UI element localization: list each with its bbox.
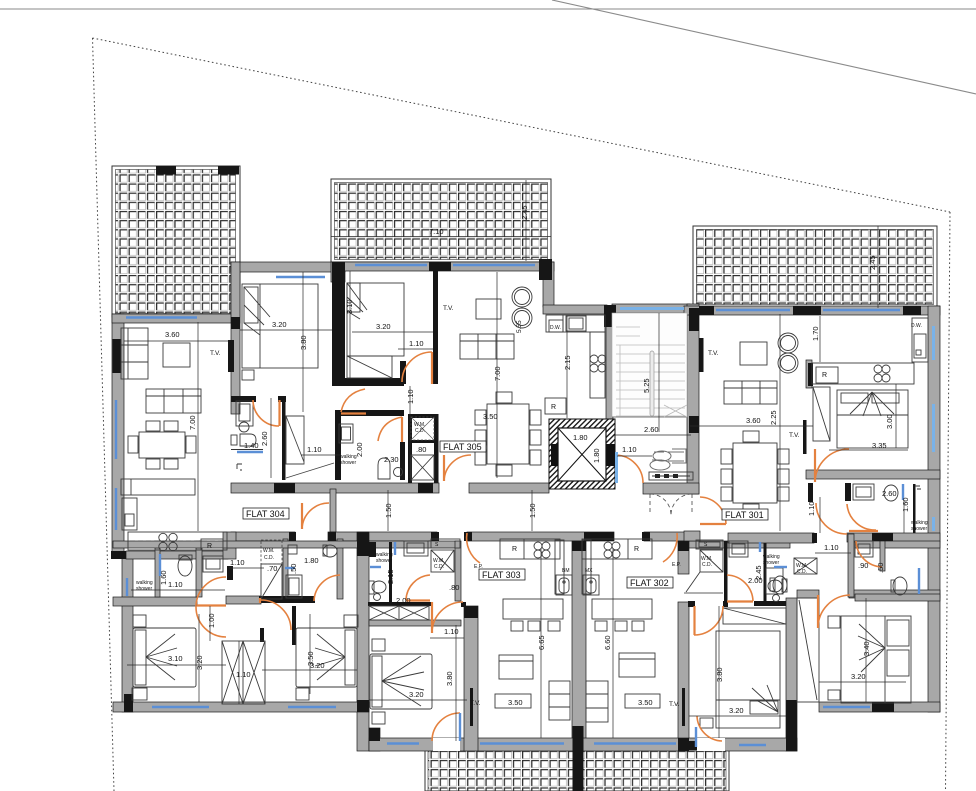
svg-text:3.10: 3.10 (345, 299, 354, 314)
svg-text:7.00: 7.00 (188, 415, 197, 430)
svg-text:C.D.: C.D. (797, 569, 807, 575)
svg-text:3.10: 3.10 (168, 654, 183, 663)
svg-text:T.V.: T.V. (708, 350, 719, 357)
svg-text:3.50: 3.50 (638, 698, 653, 707)
svg-text:3.60: 3.60 (165, 330, 180, 339)
svg-text:1.10: 1.10 (444, 627, 459, 636)
svg-text:3.20: 3.20 (851, 672, 866, 681)
svg-text:1.40: 1.40 (244, 441, 259, 450)
svg-text:1.10: 1.10 (307, 445, 322, 454)
svg-text:.50: .50 (289, 564, 298, 574)
svg-text:T.V.: T.V. (669, 701, 680, 708)
svg-text:T.V.: T.V. (443, 305, 454, 312)
svg-text:1.00: 1.00 (207, 613, 216, 628)
svg-text:3.40: 3.40 (862, 641, 871, 656)
svg-text:3.20: 3.20 (272, 320, 287, 329)
svg-text:2.60: 2.60 (882, 489, 897, 498)
svg-text:.80: .80 (449, 583, 459, 592)
svg-text:C.D.: C.D. (434, 564, 444, 570)
svg-text:C.D.: C.D. (415, 428, 425, 434)
svg-text:D.W.: D.W. (911, 323, 922, 329)
svg-text:2.60: 2.60 (260, 431, 269, 446)
svg-text:shower: shower (376, 558, 392, 564)
svg-text:1.60: 1.60 (159, 570, 168, 585)
svg-text:3.50: 3.50 (306, 651, 315, 666)
svg-text:1.80: 1.80 (573, 433, 588, 442)
svg-text:2.00: 2.00 (396, 596, 411, 605)
svg-text:3.80: 3.80 (715, 667, 724, 682)
svg-text:1.70: 1.70 (811, 326, 820, 341)
svg-text:.90: .90 (858, 561, 868, 570)
svg-text:C.D.: C.D. (702, 562, 712, 568)
svg-text:1.80: 1.80 (304, 556, 319, 565)
svg-text:1.10: 1.10 (230, 558, 245, 567)
svg-text:MX: MX (585, 568, 593, 574)
svg-text:1.10: 1.10 (807, 501, 816, 516)
svg-text:2.30: 2.30 (384, 455, 399, 464)
svg-text:E.P.: E.P. (672, 562, 681, 568)
svg-text:3.50: 3.50 (508, 698, 523, 707)
svg-text:E.P.: E.P. (474, 564, 483, 570)
svg-text:3.20: 3.20 (729, 706, 744, 715)
svg-text:2.45: 2.45 (868, 255, 877, 270)
svg-text:2.60: 2.60 (644, 425, 659, 434)
svg-text:3.20: 3.20 (409, 690, 424, 699)
svg-text:C.D.: C.D. (264, 555, 274, 561)
svg-text:3.00: 3.00 (885, 414, 894, 429)
svg-text:D.W.: D.W. (550, 325, 561, 331)
svg-text:FLAT 302: FLAT 302 (630, 578, 669, 588)
svg-text:3.80: 3.80 (299, 335, 308, 350)
svg-text:W.M.: W.M. (263, 548, 274, 554)
svg-text:1.10: 1.10 (406, 389, 415, 404)
svg-text:3.80: 3.80 (445, 671, 454, 686)
svg-text:1.10: 1.10 (236, 670, 251, 679)
svg-text:2.45: 2.45 (520, 205, 529, 220)
svg-text:T.V.: T.V. (470, 700, 481, 707)
svg-text:6.60: 6.60 (603, 635, 612, 650)
svg-text:7.00: 7.00 (493, 366, 502, 381)
svg-text:FLAT 304: FLAT 304 (246, 509, 285, 519)
svg-text:.80: .80 (416, 445, 426, 454)
svg-text:.50: .50 (876, 563, 885, 573)
svg-text:.70: .70 (267, 564, 277, 573)
svg-text:3.60: 3.60 (746, 416, 761, 425)
svg-text:3.35: 3.35 (872, 441, 887, 450)
svg-text:R: R (207, 543, 212, 550)
svg-text:2.25: 2.25 (769, 410, 778, 425)
svg-text:R: R (512, 546, 517, 553)
svg-text:2.15: 2.15 (386, 569, 395, 584)
svg-text:shower: shower (136, 586, 152, 592)
svg-text:3.50: 3.50 (483, 412, 498, 421)
svg-text:2.15: 2.15 (563, 355, 572, 370)
svg-text:5.55: 5.55 (516, 320, 523, 333)
svg-text:BM: BM (562, 568, 570, 574)
svg-text:R: R (822, 372, 827, 379)
svg-text:6.65: 6.65 (537, 635, 546, 650)
svg-text:FLAT 305: FLAT 305 (443, 442, 482, 452)
svg-text:R: R (551, 404, 556, 411)
svg-text:shower: shower (340, 460, 356, 466)
svg-text:1.60: 1.60 (901, 497, 910, 512)
svg-text:R: R (634, 546, 639, 553)
svg-text:1.10: 1.10 (168, 580, 183, 589)
svg-text:FLAT 301: FLAT 301 (725, 510, 764, 520)
svg-text:1.50: 1.50 (528, 503, 537, 518)
svg-text:1.80: 1.80 (592, 448, 601, 463)
svg-text:1.10: 1.10 (824, 543, 839, 552)
svg-text:2.45: 2.45 (754, 565, 763, 580)
svg-text:shower: shower (763, 560, 779, 566)
svg-text:T.V.: T.V. (789, 432, 800, 439)
svg-text:FLAT 303: FLAT 303 (482, 570, 521, 580)
svg-text:5.25: 5.25 (642, 378, 651, 393)
svg-text:1.10: 1.10 (409, 339, 424, 348)
svg-text:3.20: 3.20 (195, 655, 204, 670)
svg-text:7.10: 7.10 (429, 227, 444, 236)
svg-text:T.V.: T.V. (210, 350, 221, 357)
svg-text:1.10: 1.10 (622, 445, 637, 454)
svg-text:1.50: 1.50 (384, 503, 393, 518)
svg-text:3.20: 3.20 (376, 322, 391, 331)
svg-text:shower: shower (911, 526, 927, 532)
